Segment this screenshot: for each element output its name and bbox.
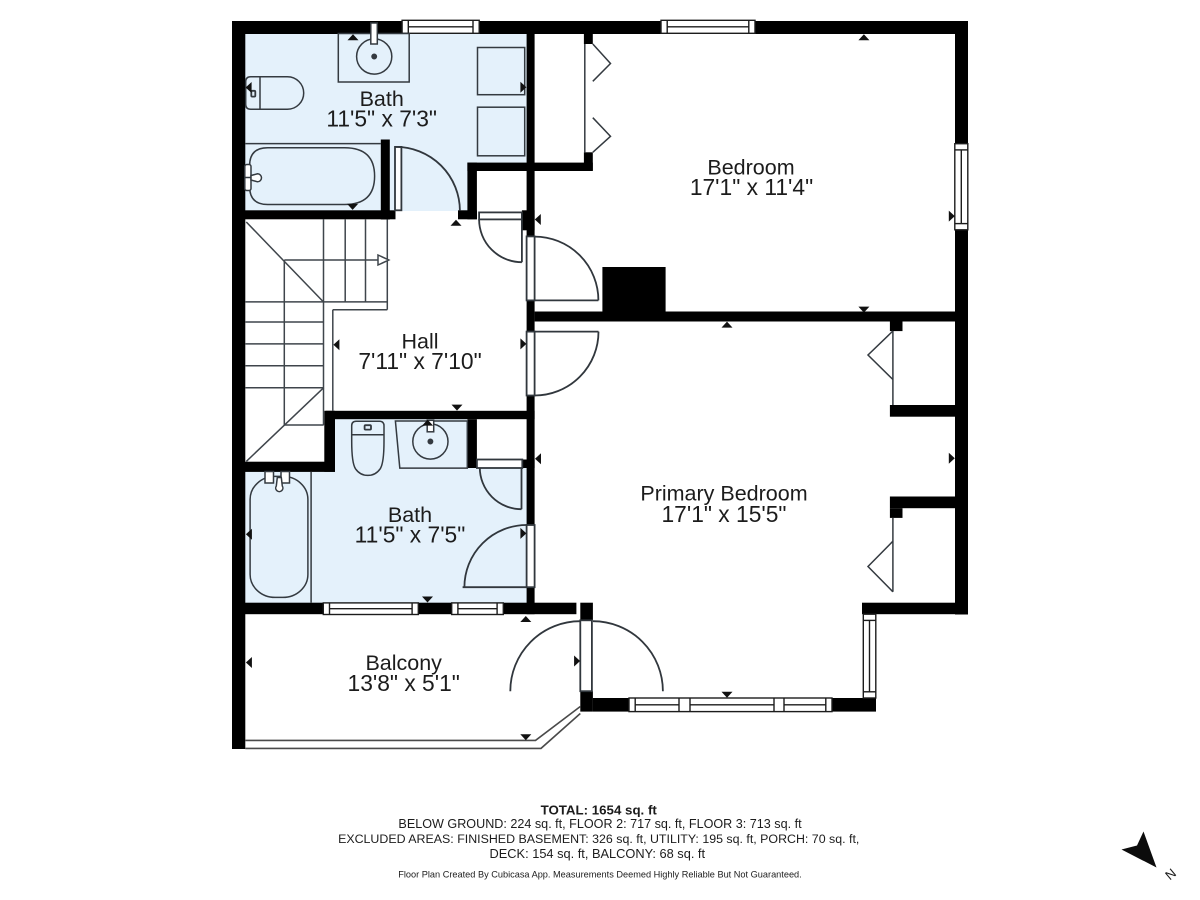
svg-text:Floor Plan Created By Cubicasa: Floor Plan Created By Cubicasa App. Meas…	[398, 870, 801, 880]
svg-text:DECK: 154 sq. ft, BALCONY: 68: DECK: 154 sq. ft, BALCONY: 68 sq. ft	[490, 846, 706, 861]
svg-text:17'1" x 11'4": 17'1" x 11'4"	[690, 174, 813, 200]
svg-text:EXCLUDED AREAS: FINISHED BASEM: EXCLUDED AREAS: FINISHED BASEMENT: 326 s…	[338, 832, 859, 846]
svg-text:11'5" x 7'3": 11'5" x 7'3"	[326, 106, 437, 132]
svg-text:17'1" x 15'5": 17'1" x 15'5"	[661, 501, 786, 527]
svg-text:7'11" x 7'10": 7'11" x 7'10"	[358, 348, 481, 374]
svg-text:TOTAL: 1654 sq. ft: TOTAL: 1654 sq. ft	[541, 803, 658, 818]
svg-text:BELOW GROUND: 224 sq. ft, FLOO: BELOW GROUND: 224 sq. ft, FLOOR 2: 717 s…	[398, 817, 802, 831]
svg-text:11'5" x 7'5": 11'5" x 7'5"	[355, 522, 466, 548]
svg-text:13'8" x 5'1": 13'8" x 5'1"	[348, 670, 460, 696]
